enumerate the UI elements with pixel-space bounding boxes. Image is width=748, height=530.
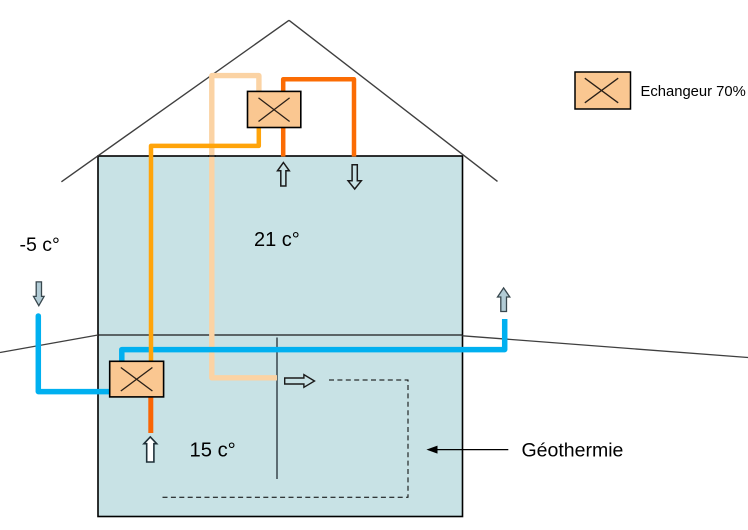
- svg-text:-5 c°: -5 c°: [20, 234, 60, 256]
- svg-text:15 c°: 15 c°: [190, 439, 236, 461]
- svg-text:21 c°: 21 c°: [254, 229, 300, 251]
- svg-text:Echangeur 70%: Echangeur 70%: [641, 84, 746, 100]
- svg-text:Géothermie: Géothermie: [522, 440, 624, 462]
